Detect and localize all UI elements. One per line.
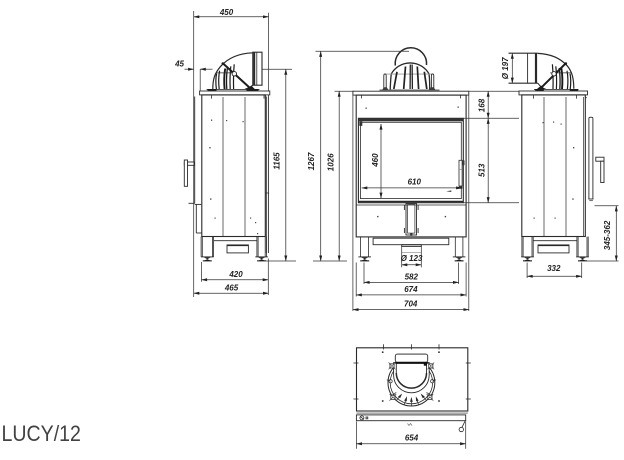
svg-text:582: 582 bbox=[405, 272, 419, 281]
svg-text:168: 168 bbox=[477, 98, 486, 112]
svg-text:513: 513 bbox=[477, 163, 486, 177]
svg-text:450: 450 bbox=[219, 8, 234, 17]
svg-text:420: 420 bbox=[228, 270, 243, 279]
svg-text:332: 332 bbox=[547, 264, 561, 273]
svg-text:704: 704 bbox=[404, 300, 418, 309]
svg-text:Ø 197: Ø 197 bbox=[501, 57, 510, 79]
svg-text:LUCY/12: LUCY/12 bbox=[2, 422, 81, 447]
svg-text:460: 460 bbox=[371, 153, 380, 168]
svg-text:1165: 1165 bbox=[273, 152, 282, 170]
svg-text:1267: 1267 bbox=[307, 152, 316, 170]
svg-text:674: 674 bbox=[404, 285, 418, 294]
svg-text:1026: 1026 bbox=[326, 153, 335, 171]
svg-text:654: 654 bbox=[405, 434, 419, 443]
svg-text:345-362: 345-362 bbox=[603, 220, 612, 250]
svg-text:465: 465 bbox=[224, 283, 239, 292]
svg-text:45: 45 bbox=[174, 59, 184, 68]
svg-text:Ø 123: Ø 123 bbox=[401, 254, 423, 263]
svg-text:610: 610 bbox=[408, 177, 422, 186]
